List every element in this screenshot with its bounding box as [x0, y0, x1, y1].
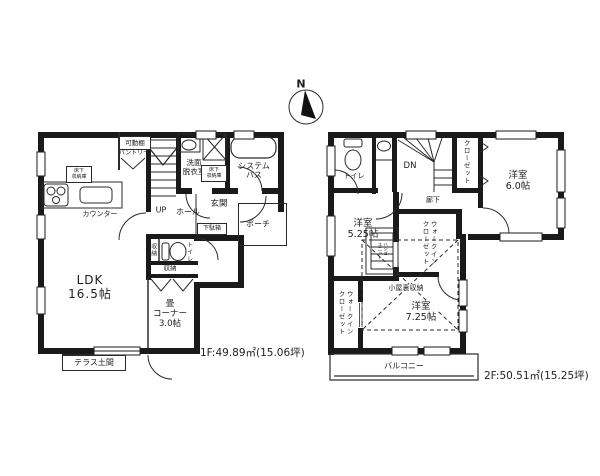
room-label-porch: ポーチ	[246, 219, 270, 228]
room-label-storage-side: 収納	[149, 243, 157, 257]
windows-2f	[327, 131, 565, 355]
floor1-area-label: 1F:49.89㎡(15.06坪)	[200, 345, 305, 360]
toilet-2f-icon	[344, 139, 362, 170]
room-label-movable-shelf: 可動棚	[119, 136, 151, 150]
room-label-toilet-2f: トイレ	[344, 172, 365, 180]
room-label-western-room-6: 洋室 6.0帖	[506, 170, 531, 192]
room-label-ladder-unit: ハシゴ ユニット	[376, 242, 387, 260]
room-label-corridor: 廊下	[426, 196, 440, 204]
room-label-underfloor-storage-washroom: 床下 収納庫	[201, 165, 227, 182]
compass-north-label: N	[296, 78, 305, 91]
room-label-toilet-1f: トイレ	[185, 242, 193, 263]
room-label-western-room-725: 洋室 7.25帖	[405, 301, 438, 323]
folding-door-icon	[151, 279, 171, 291]
folding-door-icon	[173, 279, 193, 291]
corner-sink-icon	[378, 141, 391, 151]
room-label-western-room-525: 洋室 5.25帖	[348, 218, 379, 240]
room-label-entrance: 玄関	[210, 199, 227, 209]
room-label-underfloor-storage-kitchen: 床下 収納庫	[66, 166, 92, 183]
room-label-counter: カウンター	[83, 210, 118, 218]
floor-plan-drawing	[0, 0, 600, 476]
room-label-walkin-closet-center: ウォークイン クローゼット	[421, 221, 437, 266]
room-label-system-bath: システム バス	[238, 162, 270, 181]
room-label-tatami-corner: 畳 コーナー 3.0帖	[153, 299, 187, 329]
room-label-closet: クローゼット	[462, 140, 470, 185]
floor2-area-label: 2F:50.51㎡(15.25坪)	[484, 368, 589, 383]
compass-icon	[289, 90, 323, 124]
floor2-walls	[328, 132, 564, 355]
room-label-ldk: LDK 16.5帖	[68, 273, 112, 301]
room-label-balcony: バルコニー	[384, 361, 424, 370]
room-label-hall: ホール	[176, 207, 200, 216]
toilet-1f-icon	[162, 243, 186, 261]
room-label-shoe-cabinet: 下駄箱	[197, 223, 227, 235]
bathtub-icon	[231, 137, 276, 158]
room-label-attic-storage: 小屋裏収納	[388, 284, 425, 292]
room-label-terrace: テラス土間	[62, 355, 126, 371]
room-label-walkin-closet-left: ウォークイン クローゼット	[337, 291, 353, 336]
room-label-storage: 収納	[164, 265, 177, 273]
kitchen-counter-icon	[42, 182, 122, 208]
floor-plan-page: N 可動棚 パントリー 床下 収納庫 カウンター 洗面 脱衣室 床下 収納庫 シ…	[0, 0, 600, 476]
stairs-1f-treads	[150, 140, 176, 196]
room-label-down: DN	[404, 161, 417, 171]
room-label-up: UP	[156, 205, 167, 214]
room-label-pantry: パントリー	[119, 149, 149, 156]
